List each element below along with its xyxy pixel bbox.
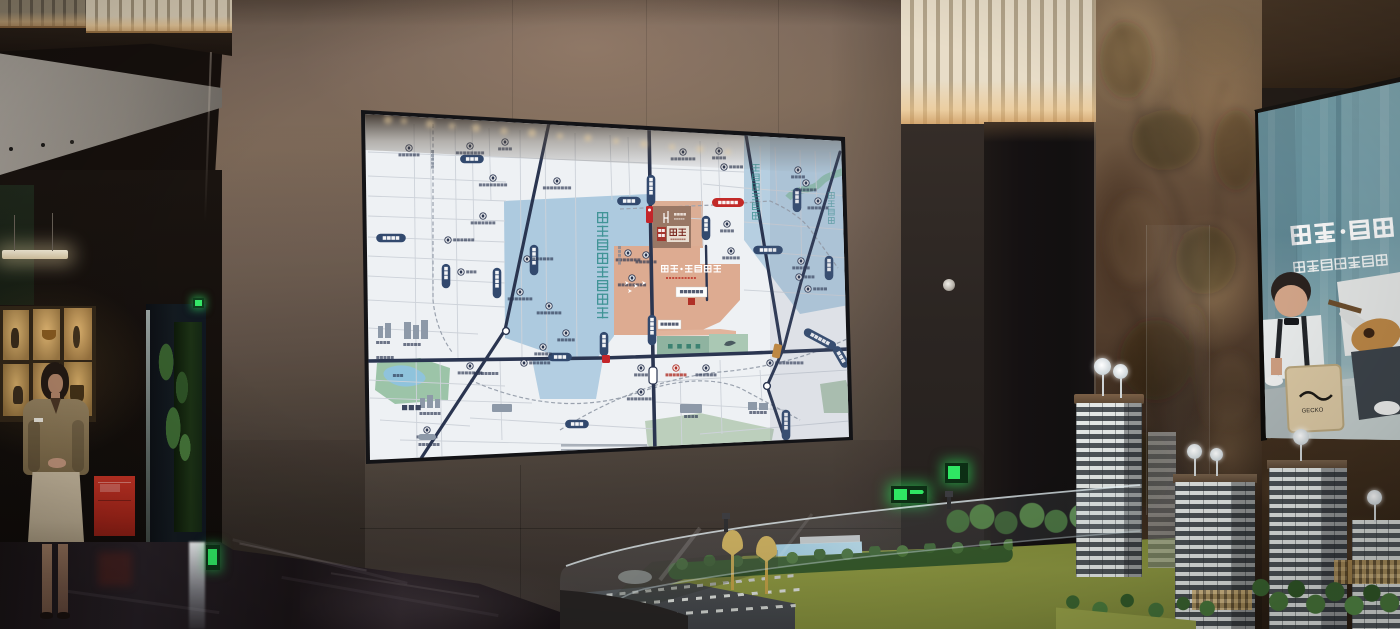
svg-text:GECKO: GECKO [1302, 408, 1324, 415]
